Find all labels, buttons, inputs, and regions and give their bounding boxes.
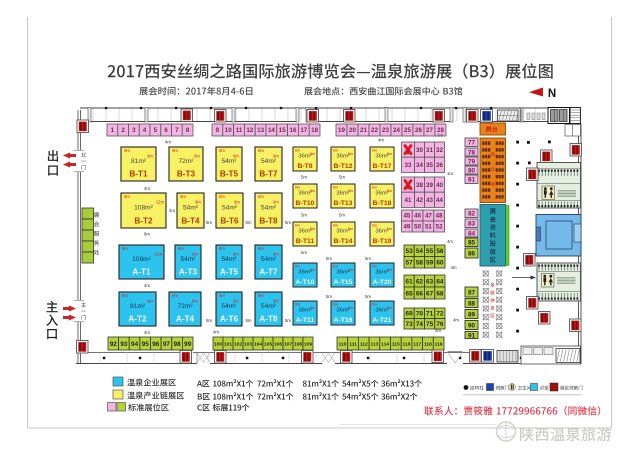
- svg-text:5: 5: [154, 127, 158, 134]
- svg-text:6m: 6m: [295, 223, 300, 227]
- svg-text:101: 101: [224, 341, 232, 347]
- svg-text:96: 96: [152, 341, 160, 348]
- svg-text:9m: 9m: [233, 154, 239, 159]
- svg-text:16: 16: [290, 127, 297, 134]
- svg-text:67: 67: [426, 290, 434, 297]
- svg-text:73: 73: [406, 321, 414, 328]
- svg-text:13: 13: [257, 127, 264, 134]
- svg-text:72: 72: [436, 311, 444, 318]
- svg-text:75: 75: [426, 321, 434, 328]
- svg-text:49: 49: [403, 224, 410, 231]
- svg-text:31: 31: [426, 147, 433, 154]
- svg-text:71: 71: [426, 311, 434, 318]
- svg-text:94: 94: [131, 341, 139, 348]
- svg-text:4m: 4m: [144, 283, 150, 288]
- svg-text:B-T18: B-T18: [373, 200, 392, 207]
- svg-text:35: 35: [426, 162, 433, 169]
- svg-text:6m: 6m: [219, 246, 225, 251]
- svg-text:104: 104: [254, 341, 262, 347]
- svg-text:4m: 4m: [378, 138, 384, 143]
- svg-text:68: 68: [436, 290, 444, 297]
- svg-text:6: 6: [164, 127, 168, 134]
- svg-text:32: 32: [436, 147, 443, 154]
- svg-text:56: 56: [436, 248, 444, 255]
- svg-text:9m: 9m: [234, 200, 240, 205]
- svg-text:5m: 5m: [365, 256, 371, 261]
- svg-text:B-T5: B-T5: [220, 170, 239, 179]
- svg-text:B-T3: B-T3: [177, 170, 196, 179]
- svg-text:B-T7: B-T7: [259, 170, 278, 179]
- svg-text:48: 48: [436, 213, 443, 220]
- svg-text:5m: 5m: [245, 318, 251, 323]
- svg-text:105: 105: [264, 341, 272, 347]
- svg-text:6m: 6m: [333, 264, 338, 268]
- svg-text:92: 92: [110, 341, 118, 348]
- svg-text:59: 59: [426, 260, 434, 267]
- svg-text:B-T11: B-T11: [296, 238, 315, 245]
- svg-text:114: 114: [381, 341, 389, 347]
- svg-text:27: 27: [426, 127, 433, 134]
- svg-text:118: 118: [424, 341, 432, 347]
- svg-text:54m²: 54m²: [221, 158, 237, 165]
- svg-text:B-T9: B-T9: [297, 163, 312, 170]
- svg-text:87: 87: [468, 289, 476, 296]
- svg-text:B-T2: B-T2: [134, 217, 153, 226]
- svg-text:5m: 5m: [326, 294, 332, 299]
- svg-text:6m: 6m: [387, 189, 392, 193]
- svg-text:9m: 9m: [273, 299, 279, 304]
- svg-text:9m: 9m: [122, 246, 128, 251]
- svg-text:B-T17: B-T17: [373, 163, 392, 170]
- svg-text:69: 69: [406, 311, 414, 318]
- svg-text:26: 26: [415, 127, 422, 134]
- svg-text:80: 80: [468, 167, 476, 174]
- svg-text:12m: 12m: [156, 200, 165, 205]
- svg-text:6m: 6m: [295, 302, 300, 306]
- svg-text:18: 18: [311, 127, 318, 134]
- svg-text:6m: 6m: [310, 152, 315, 156]
- svg-text:57: 57: [406, 260, 414, 267]
- svg-text:93: 93: [120, 341, 128, 348]
- svg-text:43: 43: [426, 197, 433, 204]
- svg-text:74: 74: [416, 321, 424, 328]
- svg-text:9m: 9m: [233, 252, 239, 257]
- svg-text:9m: 9m: [273, 252, 279, 257]
- svg-text:83: 83: [468, 221, 476, 228]
- svg-text:70: 70: [416, 311, 424, 318]
- svg-text:A-T21: A-T21: [373, 317, 392, 324]
- svg-text:8m: 8m: [194, 154, 200, 159]
- svg-text:1m: 1m: [437, 133, 443, 138]
- svg-text:B-T13: B-T13: [334, 200, 353, 207]
- svg-text:44: 44: [436, 197, 443, 204]
- svg-text:A-T5: A-T5: [220, 268, 239, 277]
- svg-text:12m: 12m: [154, 252, 163, 257]
- svg-text:55: 55: [426, 248, 434, 255]
- svg-text:14: 14: [268, 127, 275, 134]
- svg-text:108m²: 108m²: [132, 256, 151, 263]
- svg-text:9m: 9m: [172, 293, 178, 298]
- svg-text:6m: 6m: [310, 306, 315, 310]
- svg-text:6m: 6m: [348, 268, 353, 272]
- svg-text:54m²: 54m²: [261, 303, 277, 310]
- svg-text:60: 60: [436, 260, 444, 267]
- svg-text:54m²: 54m²: [261, 256, 277, 263]
- svg-text:B-T6: B-T6: [220, 217, 239, 226]
- svg-text:6m: 6m: [348, 306, 353, 310]
- svg-text:107: 107: [284, 341, 292, 347]
- svg-text:6m: 6m: [333, 302, 338, 306]
- svg-text:6m: 6m: [372, 302, 377, 306]
- svg-text:20: 20: [349, 127, 356, 134]
- svg-text:9m: 9m: [147, 299, 153, 304]
- svg-text:50: 50: [414, 224, 421, 231]
- svg-text:6m: 6m: [372, 148, 377, 152]
- svg-text:72m²: 72m²: [178, 158, 194, 165]
- svg-text:54m²: 54m²: [222, 204, 238, 211]
- svg-text:117: 117: [413, 341, 421, 347]
- svg-text:54m²: 54m²: [261, 158, 277, 165]
- svg-text:A-T20: A-T20: [373, 279, 392, 286]
- svg-text:6m: 6m: [387, 152, 392, 156]
- svg-text:98: 98: [174, 341, 182, 348]
- svg-text:9m: 9m: [172, 148, 178, 153]
- svg-text:111: 111: [349, 341, 357, 347]
- svg-text:54m²: 54m²: [221, 303, 237, 310]
- svg-text:17: 17: [300, 127, 307, 134]
- svg-text:9m: 9m: [147, 154, 153, 159]
- svg-text:22: 22: [371, 127, 378, 134]
- svg-text:B-T4: B-T4: [181, 217, 200, 226]
- svg-text:A-T2: A-T2: [128, 315, 147, 324]
- svg-text:6m: 6m: [387, 268, 392, 272]
- svg-text:A-T1: A-T1: [132, 268, 151, 277]
- svg-text:6m: 6m: [295, 264, 300, 268]
- svg-text:5m: 5m: [301, 175, 307, 180]
- svg-text:100: 100: [214, 341, 222, 347]
- svg-text:113: 113: [370, 341, 378, 347]
- svg-text:5m: 5m: [301, 250, 307, 255]
- svg-text:6m: 6m: [348, 189, 353, 193]
- svg-text:9m: 9m: [192, 252, 198, 257]
- svg-text:9m: 9m: [233, 299, 239, 304]
- svg-text:12: 12: [246, 127, 253, 134]
- svg-text:9m: 9m: [124, 194, 130, 199]
- svg-text:64: 64: [436, 278, 444, 285]
- svg-text:46: 46: [414, 213, 421, 220]
- svg-text:5m: 5m: [365, 294, 371, 299]
- svg-text:6m: 6m: [387, 227, 392, 231]
- svg-text:6m: 6m: [219, 194, 225, 199]
- svg-text:A-T3: A-T3: [179, 268, 198, 277]
- svg-text:A-T7: A-T7: [259, 268, 278, 277]
- svg-text:97: 97: [163, 341, 171, 348]
- svg-text:33: 33: [405, 162, 412, 169]
- svg-text:54: 54: [416, 248, 424, 255]
- svg-text:99: 99: [184, 341, 192, 348]
- svg-text:6m: 6m: [258, 194, 264, 199]
- svg-text:110: 110: [338, 341, 346, 347]
- svg-text:66: 66: [416, 290, 424, 297]
- svg-text:6m: 6m: [295, 185, 300, 189]
- svg-text:119: 119: [435, 341, 443, 347]
- svg-text:54m²: 54m²: [183, 204, 199, 211]
- svg-text:B-T19: B-T19: [373, 238, 392, 245]
- svg-text:106: 106: [274, 341, 282, 347]
- svg-text:103: 103: [244, 341, 252, 347]
- svg-text:5m: 5m: [326, 256, 332, 261]
- svg-text:30: 30: [416, 147, 423, 154]
- svg-text:B-T8: B-T8: [259, 217, 278, 226]
- svg-text:1: 1: [111, 127, 115, 134]
- svg-text:6m: 6m: [348, 227, 353, 231]
- svg-text:B-T12: B-T12: [334, 163, 353, 170]
- svg-text:112: 112: [360, 341, 368, 347]
- svg-text:1m: 1m: [447, 171, 453, 176]
- svg-text:A-T4: A-T4: [176, 315, 195, 324]
- svg-text:77: 77: [468, 140, 476, 147]
- svg-text:2: 2: [121, 127, 125, 134]
- svg-text:A-T10: A-T10: [296, 279, 315, 286]
- svg-text:7: 7: [175, 127, 179, 134]
- svg-text:81m²: 81m²: [131, 158, 147, 165]
- svg-text:81: 81: [468, 177, 476, 184]
- svg-text:86: 86: [468, 250, 476, 257]
- svg-text:81m²: 81m²: [130, 303, 146, 310]
- svg-text:4m: 4m: [144, 330, 150, 335]
- svg-text:108: 108: [294, 341, 302, 347]
- svg-text:115: 115: [392, 341, 400, 347]
- svg-text:A-T11: A-T11: [296, 317, 315, 324]
- svg-text:4m: 4m: [169, 208, 175, 213]
- svg-text:102: 102: [234, 341, 242, 347]
- svg-text:15: 15: [279, 127, 286, 134]
- svg-text:9: 9: [216, 127, 220, 134]
- svg-text:6m: 6m: [310, 227, 315, 231]
- svg-text:4m: 4m: [453, 318, 459, 323]
- svg-text:6m: 6m: [310, 189, 315, 193]
- svg-text:65: 65: [406, 290, 414, 297]
- svg-text:19: 19: [338, 127, 345, 134]
- svg-text:88: 88: [468, 300, 476, 307]
- svg-text:A-T16: A-T16: [334, 317, 353, 324]
- svg-text:9m: 9m: [273, 200, 279, 205]
- svg-text:6m: 6m: [333, 185, 338, 189]
- svg-text:54m²: 54m²: [221, 256, 237, 263]
- svg-text:54m²: 54m²: [261, 204, 277, 211]
- svg-text:A-T6: A-T6: [220, 315, 239, 324]
- svg-text:21: 21: [360, 127, 367, 134]
- svg-text:8m: 8m: [192, 299, 198, 304]
- svg-text:6m: 6m: [219, 148, 225, 153]
- svg-text:5m: 5m: [206, 220, 212, 225]
- svg-text:72m²: 72m²: [177, 303, 193, 310]
- svg-text:116: 116: [403, 341, 411, 347]
- svg-text:6m: 6m: [310, 268, 315, 272]
- svg-text:9m: 9m: [124, 148, 130, 153]
- svg-text:6m: 6m: [372, 264, 377, 268]
- svg-text:41: 41: [405, 197, 412, 204]
- svg-text:62: 62: [416, 278, 424, 285]
- svg-text:6m: 6m: [258, 293, 264, 298]
- svg-text:6m: 6m: [348, 152, 353, 156]
- svg-text:6m: 6m: [387, 306, 392, 310]
- svg-text:6m: 6m: [180, 194, 186, 199]
- svg-text:53: 53: [406, 248, 414, 255]
- svg-text:25: 25: [404, 127, 411, 134]
- svg-text:4: 4: [143, 127, 147, 134]
- svg-text:8m: 8m: [144, 232, 150, 237]
- svg-text:78: 78: [468, 149, 476, 156]
- svg-text:9m: 9m: [122, 293, 128, 298]
- svg-text:54m²: 54m²: [180, 256, 196, 263]
- svg-text:B-T1: B-T1: [129, 170, 148, 179]
- svg-text:B-T10: B-T10: [296, 200, 315, 207]
- svg-text:109: 109: [304, 341, 312, 347]
- svg-text:6m: 6m: [295, 148, 300, 152]
- svg-text:36: 36: [436, 162, 443, 169]
- svg-text:4m: 4m: [447, 239, 453, 244]
- svg-text:6m: 6m: [333, 223, 338, 227]
- svg-text:10: 10: [225, 127, 232, 134]
- svg-text:5m: 5m: [285, 220, 291, 225]
- svg-text:A-T15: A-T15: [334, 279, 353, 286]
- svg-text:5m: 5m: [301, 213, 307, 218]
- svg-text:4m: 4m: [450, 265, 456, 270]
- svg-text:9m: 9m: [195, 200, 201, 205]
- svg-text:5m: 5m: [339, 213, 345, 218]
- svg-text:N: N: [548, 88, 556, 100]
- svg-text:63: 63: [426, 278, 434, 285]
- svg-text:6m: 6m: [219, 293, 225, 298]
- svg-text:95: 95: [142, 341, 150, 348]
- svg-text:4m: 4m: [435, 328, 441, 333]
- svg-text:47: 47: [425, 213, 432, 220]
- svg-text:3: 3: [132, 127, 136, 134]
- svg-text:58: 58: [416, 260, 424, 267]
- svg-text:40: 40: [436, 182, 443, 189]
- svg-text:24: 24: [393, 127, 400, 134]
- svg-text:6m: 6m: [333, 148, 338, 152]
- svg-text:4m: 4m: [165, 140, 171, 145]
- svg-text:5m: 5m: [285, 318, 291, 323]
- svg-text:52: 52: [436, 224, 443, 231]
- svg-text:38: 38: [416, 182, 423, 189]
- svg-text:4m: 4m: [144, 186, 150, 191]
- svg-text:79: 79: [468, 158, 476, 165]
- svg-text:85: 85: [468, 240, 476, 247]
- svg-text:5m: 5m: [206, 318, 212, 323]
- svg-text:6m: 6m: [372, 185, 377, 189]
- svg-text:6m: 6m: [372, 223, 377, 227]
- svg-text:23: 23: [382, 127, 389, 134]
- svg-text:8: 8: [186, 127, 190, 134]
- svg-text:91: 91: [468, 332, 476, 339]
- svg-text:39: 39: [426, 182, 433, 189]
- svg-text:90: 90: [468, 322, 476, 329]
- svg-text:82: 82: [468, 211, 476, 218]
- svg-text:89: 89: [468, 311, 476, 318]
- svg-text:42: 42: [416, 197, 423, 204]
- svg-text:11: 11: [236, 127, 243, 134]
- svg-text:4m: 4m: [213, 330, 219, 335]
- svg-text:6m: 6m: [178, 246, 184, 251]
- svg-text:6m: 6m: [258, 148, 264, 153]
- svg-text:5m: 5m: [339, 175, 345, 180]
- svg-text:5m: 5m: [245, 220, 251, 225]
- svg-text:84: 84: [468, 230, 476, 237]
- svg-text:B-T14: B-T14: [334, 238, 353, 245]
- svg-text:9m: 9m: [273, 154, 279, 159]
- svg-text:A-T8: A-T8: [259, 315, 278, 324]
- svg-text:61: 61: [406, 278, 414, 285]
- svg-text:45: 45: [403, 213, 410, 220]
- svg-text:6m: 6m: [258, 246, 264, 251]
- svg-text:51: 51: [425, 224, 432, 231]
- svg-text:108m²: 108m²: [134, 204, 153, 211]
- svg-text:34: 34: [416, 162, 423, 169]
